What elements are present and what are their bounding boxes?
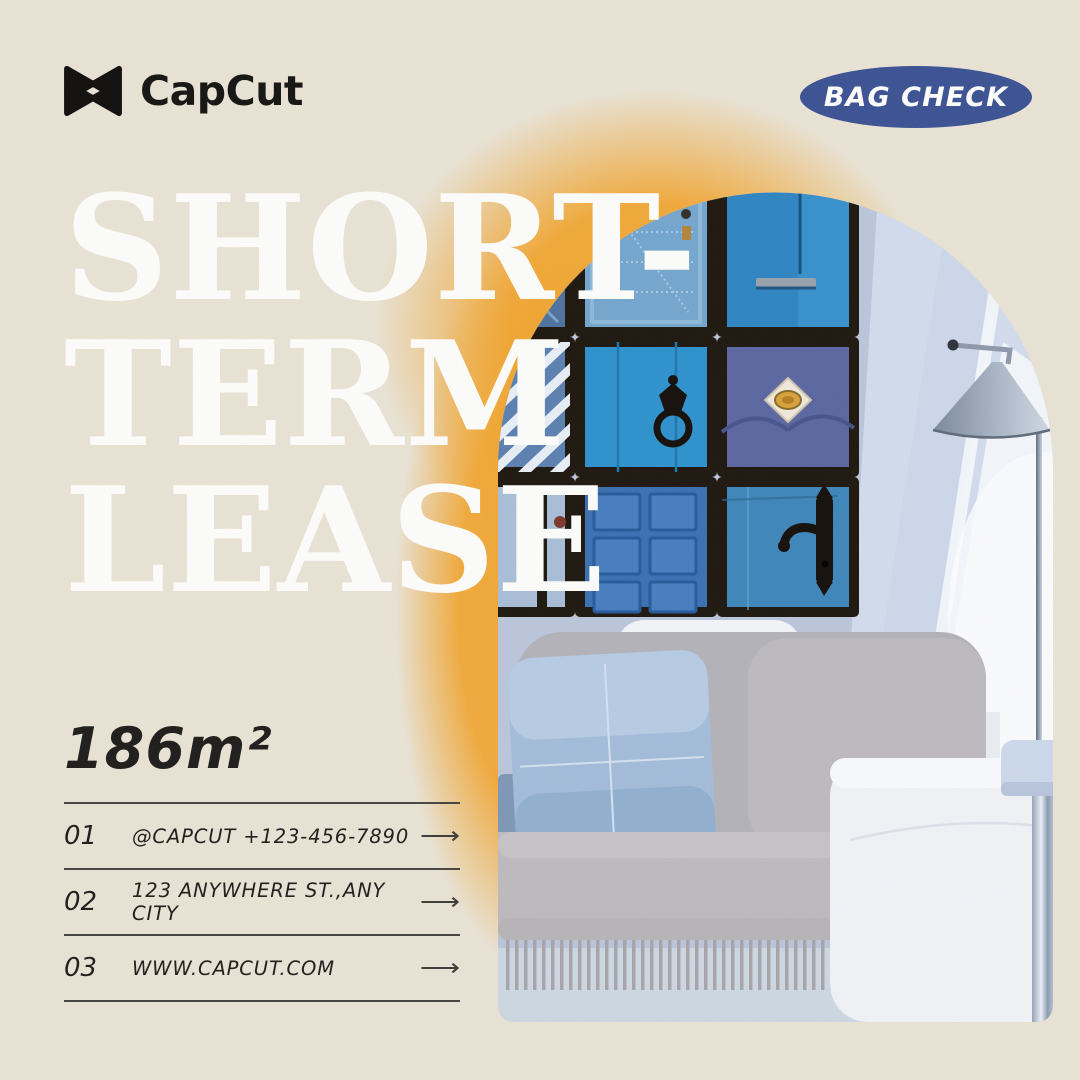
- row-label: WWW.CAPCUT.COM: [132, 957, 420, 980]
- row-label: @CAPCUT +123-456-7890: [132, 825, 420, 848]
- info-block: 186m² 01 @CAPCUT +123-456-7890 ⟶ 02 123 …: [64, 718, 460, 1002]
- sofa-armrest: [830, 758, 1053, 1022]
- contact-row-1[interactable]: 01 @CAPCUT +123-456-7890 ⟶: [64, 804, 460, 868]
- headline-line-2: TERM: [64, 322, 698, 468]
- headline-line-3: LEASE: [64, 468, 698, 614]
- bag-check-badge[interactable]: BAG CHECK: [800, 66, 1032, 128]
- row-number: 03: [64, 953, 132, 983]
- contact-row-2[interactable]: 02 123 ANYWHERE ST.,ANY CITY ⟶: [64, 870, 460, 934]
- row-number: 01: [64, 821, 132, 851]
- arrow-right-icon: ⟶: [420, 824, 460, 848]
- brand-name: CapCut: [140, 67, 303, 115]
- row-number: 02: [64, 887, 132, 917]
- row-label: 123 ANYWHERE ST.,ANY CITY: [132, 879, 420, 925]
- contact-row-3[interactable]: 03 WWW.CAPCUT.COM ⟶: [64, 936, 460, 1000]
- capcut-bowtie-icon: [62, 64, 124, 118]
- arrow-right-icon: ⟶: [420, 890, 460, 914]
- area-value: 186m²: [64, 718, 460, 780]
- capcut-logo: CapCut: [62, 64, 303, 118]
- sofa: [498, 632, 1053, 1022]
- divider: [64, 1000, 460, 1002]
- headline: SHORT- TERM LEASE: [64, 176, 698, 614]
- headline-line-1: SHORT-: [64, 176, 698, 322]
- arrow-right-icon: ⟶: [420, 956, 460, 980]
- poster-canvas: SHORT- TERM LEASE CapCut BAG CHECK 186m²…: [0, 0, 1080, 1080]
- badge-label: BAG CHECK: [824, 82, 1008, 113]
